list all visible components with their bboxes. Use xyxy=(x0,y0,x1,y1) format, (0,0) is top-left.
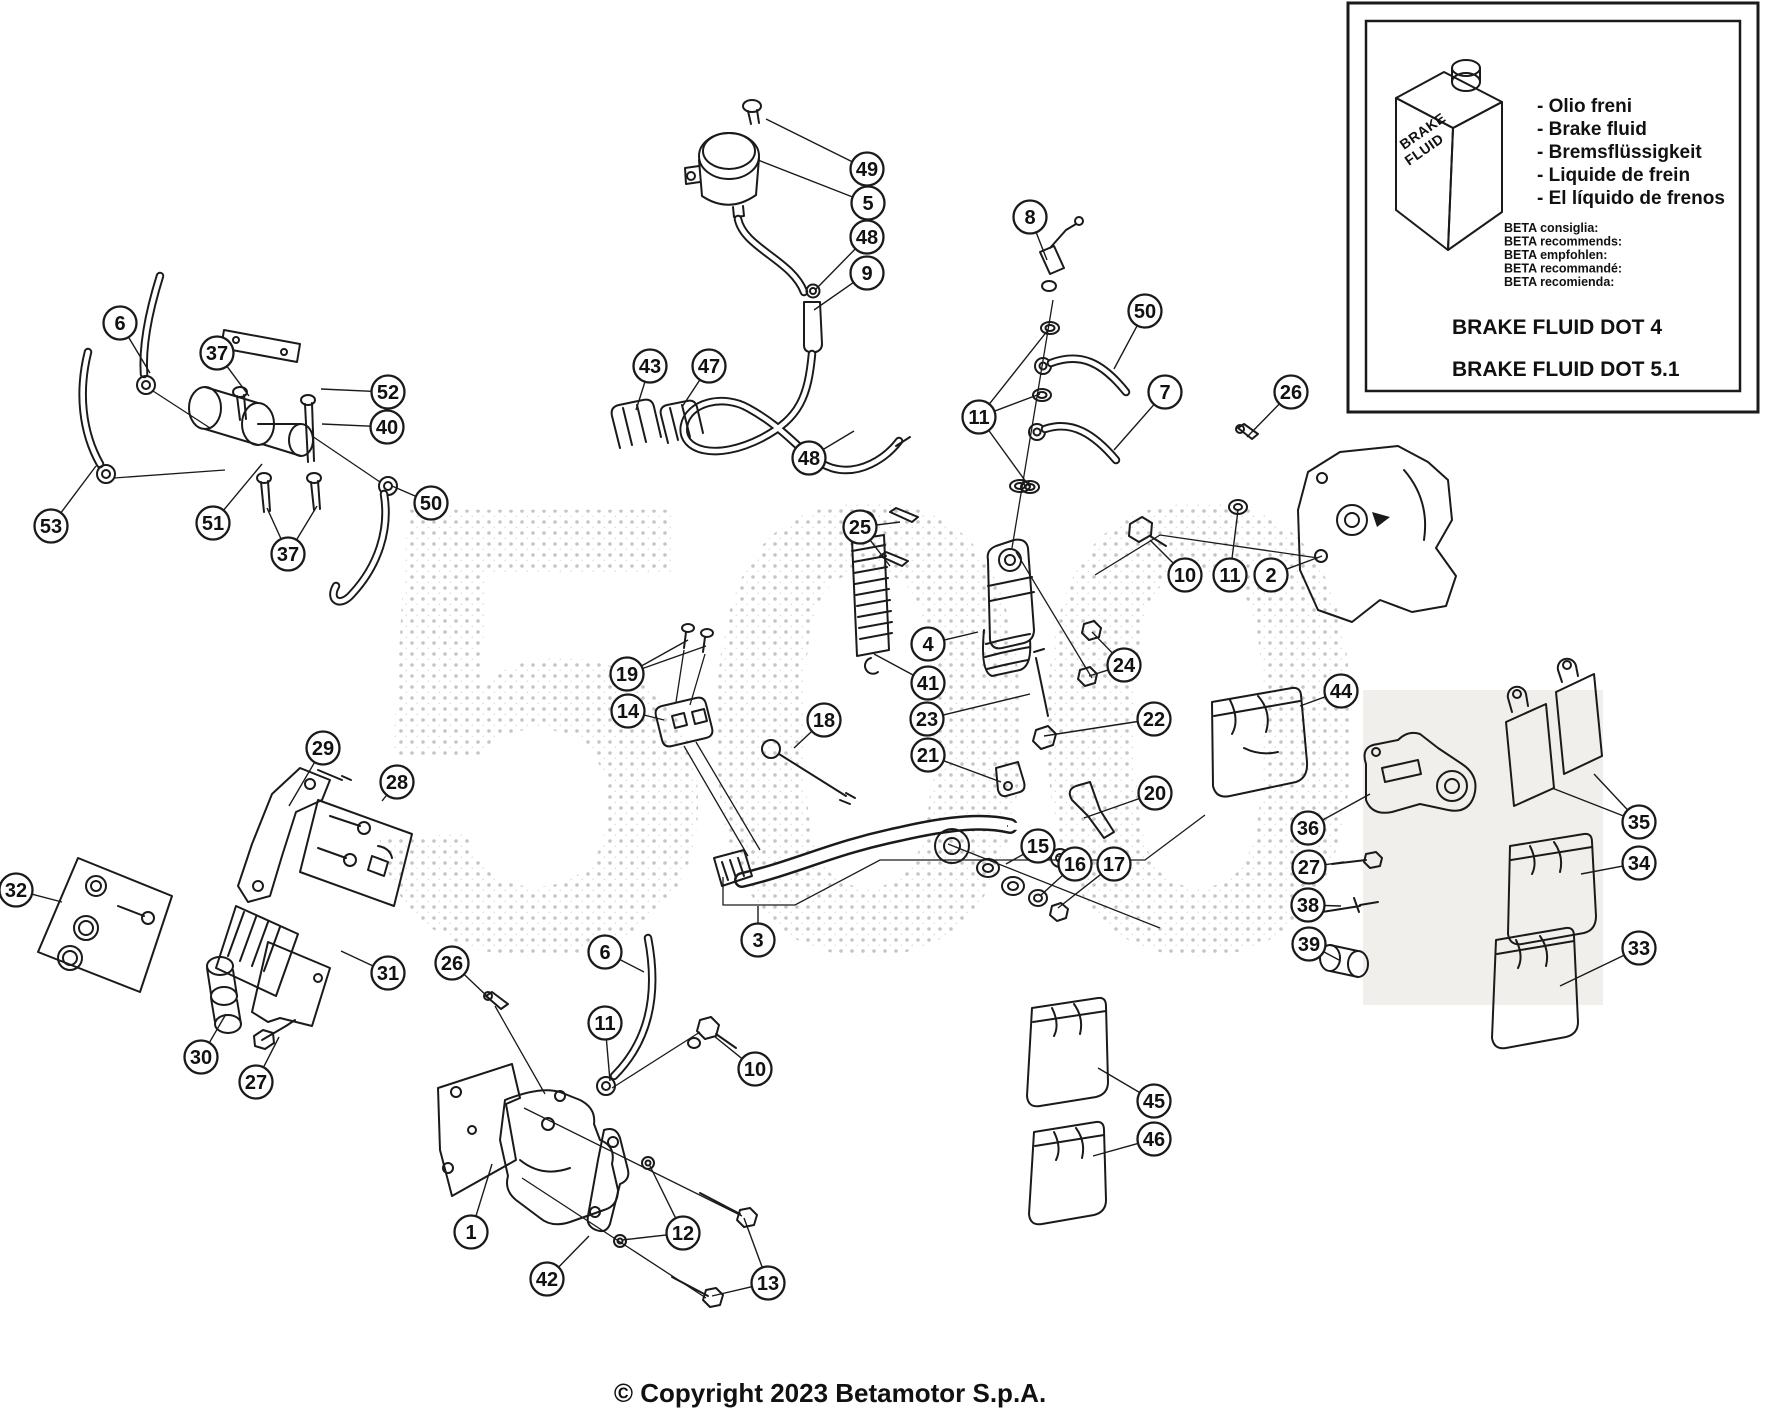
callout-number: 24 xyxy=(1113,655,1136,677)
callout-9: 9 xyxy=(851,257,884,290)
callout-19: 19 xyxy=(611,658,644,691)
fluid-name-fr: - Liquide de frein xyxy=(1537,165,1690,186)
callout-49: 49 xyxy=(851,153,884,186)
callout-number: 34 xyxy=(1628,853,1651,875)
pad-kit-group xyxy=(38,768,412,1049)
callout-number: 12 xyxy=(672,1223,694,1245)
callout-50: 50 xyxy=(1129,295,1162,328)
callout-26: 26 xyxy=(1275,376,1308,409)
callout-21: 21 xyxy=(912,739,945,772)
callout-number: 3 xyxy=(752,930,763,952)
callout-26: 26 xyxy=(436,947,469,980)
callout-4: 4 xyxy=(912,628,945,661)
callout-17: 17 xyxy=(1098,848,1131,881)
callout-20: 20 xyxy=(1139,777,1172,810)
callout-22: 22 xyxy=(1138,703,1171,736)
callout-number: 47 xyxy=(698,356,720,378)
spec-dot4: BRAKE FLUID DOT 4 xyxy=(1452,316,1662,339)
callout-number: 41 xyxy=(917,673,939,695)
callout-number: 50 xyxy=(420,493,442,515)
callout-number: 15 xyxy=(1027,836,1049,858)
leader-line-5 xyxy=(758,160,853,197)
brake-fluid-inset: BRAKE FLUID - Olio freni - Brake fluid -… xyxy=(1348,3,1758,412)
leader-line-48 xyxy=(816,249,855,289)
leader-line-49 xyxy=(766,119,852,162)
callout-11: 11 xyxy=(1214,559,1247,592)
callout-27: 27 xyxy=(240,1066,273,1099)
fluid-name-en: - Brake fluid xyxy=(1537,119,1647,140)
callout-28: 28 xyxy=(381,766,414,799)
recommend-en: BETA recommends: xyxy=(1504,235,1622,249)
callout-34: 34 xyxy=(1623,847,1656,880)
leader-line-9 xyxy=(814,282,854,310)
callout-number: 14 xyxy=(617,701,640,723)
callout-31: 31 xyxy=(372,957,405,990)
callout-number: 27 xyxy=(1298,857,1320,879)
callout-number: 33 xyxy=(1628,938,1650,960)
leader-line-12 xyxy=(650,1166,676,1218)
recommend-es: BETA recomienda: xyxy=(1504,275,1614,289)
callout-38: 38 xyxy=(1292,889,1325,922)
callout-45: 45 xyxy=(1138,1085,1171,1118)
callout-30: 30 xyxy=(185,1041,218,1074)
callout-7: 7 xyxy=(1149,376,1182,409)
leader-line-12 xyxy=(622,1235,667,1240)
callout-number: 48 xyxy=(798,448,820,470)
callout-number: 49 xyxy=(856,159,878,181)
callout-32: 32 xyxy=(0,874,33,907)
callout-51: 51 xyxy=(197,507,230,540)
callout-number: 1 xyxy=(465,1222,476,1244)
leader-line-51 xyxy=(224,464,263,510)
leader-line-50 xyxy=(1114,326,1137,369)
callout-number: 43 xyxy=(639,356,661,378)
callout-33: 33 xyxy=(1623,932,1656,965)
callout-25: 25 xyxy=(844,511,877,544)
callout-35: 35 xyxy=(1623,806,1656,839)
callout-number: 17 xyxy=(1103,854,1125,876)
callout-number: 39 xyxy=(1298,934,1320,956)
callout-number: 31 xyxy=(377,963,399,985)
callout-15: 15 xyxy=(1022,830,1055,863)
spec-dot51: BRAKE FLUID DOT 5.1 xyxy=(1452,358,1680,381)
callout-number: 18 xyxy=(813,710,835,732)
callout-number: 25 xyxy=(849,517,871,539)
fluid-name-de: - Bremsflüssigkeit xyxy=(1537,142,1702,163)
callout-number: 4 xyxy=(922,634,934,656)
callout-36: 36 xyxy=(1292,812,1325,845)
callout-number: 19 xyxy=(616,664,638,686)
callout-number: 40 xyxy=(376,417,398,439)
callout-37: 37 xyxy=(201,337,234,370)
recommend-it: BETA consiglia: xyxy=(1504,221,1598,235)
callout-number: 20 xyxy=(1144,783,1166,805)
callout-11: 11 xyxy=(963,401,996,434)
leader-line-27 xyxy=(264,1037,280,1067)
callout-number: 26 xyxy=(441,953,463,975)
callout-12: 12 xyxy=(667,1217,700,1250)
callout-18: 18 xyxy=(808,704,841,737)
callout-53: 53 xyxy=(35,510,68,543)
callout-number: 8 xyxy=(1024,207,1035,229)
callout-11: 11 xyxy=(589,1007,622,1040)
callout-14: 14 xyxy=(612,695,645,728)
callout-number: 29 xyxy=(312,738,334,760)
callout-number: 50 xyxy=(1134,301,1156,323)
callout-number: 38 xyxy=(1297,895,1319,917)
leader-line-37 xyxy=(297,506,318,540)
callout-29: 29 xyxy=(307,732,340,765)
callout-40: 40 xyxy=(371,411,404,444)
callout-number: 11 xyxy=(1219,565,1240,587)
callout-39: 39 xyxy=(1293,928,1326,961)
gray-panel xyxy=(1363,690,1603,1005)
callout-number: 48 xyxy=(856,227,878,249)
callout-number: 51 xyxy=(202,513,224,535)
callout-number: 2 xyxy=(1265,565,1276,587)
callout-number: 6 xyxy=(599,942,610,964)
callout-23: 23 xyxy=(911,703,944,736)
callout-16: 16 xyxy=(1059,848,1092,881)
leader-line-38 xyxy=(1325,906,1342,907)
callout-number: 30 xyxy=(190,1047,212,1069)
callout-13: 13 xyxy=(752,1267,785,1300)
callout-48: 48 xyxy=(851,221,884,254)
callout-number: 9 xyxy=(861,263,872,285)
callout-48: 48 xyxy=(793,442,826,475)
callout-43: 43 xyxy=(634,350,667,383)
callout-number: 45 xyxy=(1143,1091,1165,1113)
recommend-fr: BETA recommandé: xyxy=(1504,262,1622,276)
callout-number: 52 xyxy=(377,382,399,404)
callout-10: 10 xyxy=(1169,559,1202,592)
fluid-name-it: - Olio freni xyxy=(1537,96,1632,117)
callout-number: 13 xyxy=(757,1273,779,1295)
callout-number: 16 xyxy=(1064,854,1086,876)
callout-number: 42 xyxy=(536,1269,558,1291)
callout-6: 6 xyxy=(589,936,622,969)
leader-line-37 xyxy=(227,366,249,396)
callout-number: 10 xyxy=(744,1059,766,1081)
callout-number: 11 xyxy=(968,407,989,429)
callout-number: 27 xyxy=(245,1072,267,1094)
callout-number: 37 xyxy=(277,544,299,566)
recommend-de: BETA empfohlen: xyxy=(1504,248,1607,262)
leader-line-1 xyxy=(476,1164,492,1216)
callout-number: 10 xyxy=(1174,565,1196,587)
callout-number: 7 xyxy=(1159,382,1170,404)
callout-44: 44 xyxy=(1325,675,1358,708)
callout-46: 46 xyxy=(1138,1123,1171,1156)
callout-number: 46 xyxy=(1143,1129,1165,1151)
callout-5: 5 xyxy=(852,187,885,220)
callout-41: 41 xyxy=(912,667,945,700)
callout-6: 6 xyxy=(104,307,137,340)
callout-number: 5 xyxy=(862,193,873,215)
callout-number: 44 xyxy=(1330,681,1353,703)
callout-number: 26 xyxy=(1280,382,1302,404)
callout-52: 52 xyxy=(372,376,405,409)
callout-number: 22 xyxy=(1143,709,1165,731)
callout-47: 47 xyxy=(693,350,726,383)
callout-42: 42 xyxy=(531,1263,564,1296)
parts-diagram-page: 500 xyxy=(0,0,1775,1410)
callout-number: 35 xyxy=(1628,812,1650,834)
diagram-canvas: 500 xyxy=(0,0,1775,1410)
callout-2: 2 xyxy=(1255,559,1288,592)
callout-37: 37 xyxy=(272,538,305,571)
callout-number: 28 xyxy=(386,772,408,794)
callout-number: 21 xyxy=(917,745,939,767)
callout-number: 11 xyxy=(594,1013,615,1035)
callout-number: 36 xyxy=(1297,818,1319,840)
callout-number: 32 xyxy=(5,880,27,902)
leader-line-42 xyxy=(559,1236,590,1267)
callout-8: 8 xyxy=(1014,201,1047,234)
callout-3: 3 xyxy=(742,924,775,957)
leader-line-37 xyxy=(267,508,281,539)
callout-27: 27 xyxy=(1293,851,1326,884)
callout-number: 6 xyxy=(114,313,125,335)
callout-1: 1 xyxy=(455,1216,488,1249)
callout-50: 50 xyxy=(415,487,448,520)
watermark: 500 xyxy=(360,371,1353,1086)
leader-line-32 xyxy=(32,894,62,902)
callout-number: 53 xyxy=(40,516,62,538)
callout-24: 24 xyxy=(1108,649,1141,682)
leader-line-46 xyxy=(1093,1143,1138,1156)
leader-line-53 xyxy=(61,466,96,513)
callout-number: 23 xyxy=(916,709,938,731)
fluid-name-es: - El líquido de frenos xyxy=(1537,188,1725,209)
copyright-text: © Copyright 2023 Betamotor S.p.A. xyxy=(614,1378,1046,1408)
callout-number: 37 xyxy=(206,343,228,365)
callout-10: 10 xyxy=(739,1053,772,1086)
